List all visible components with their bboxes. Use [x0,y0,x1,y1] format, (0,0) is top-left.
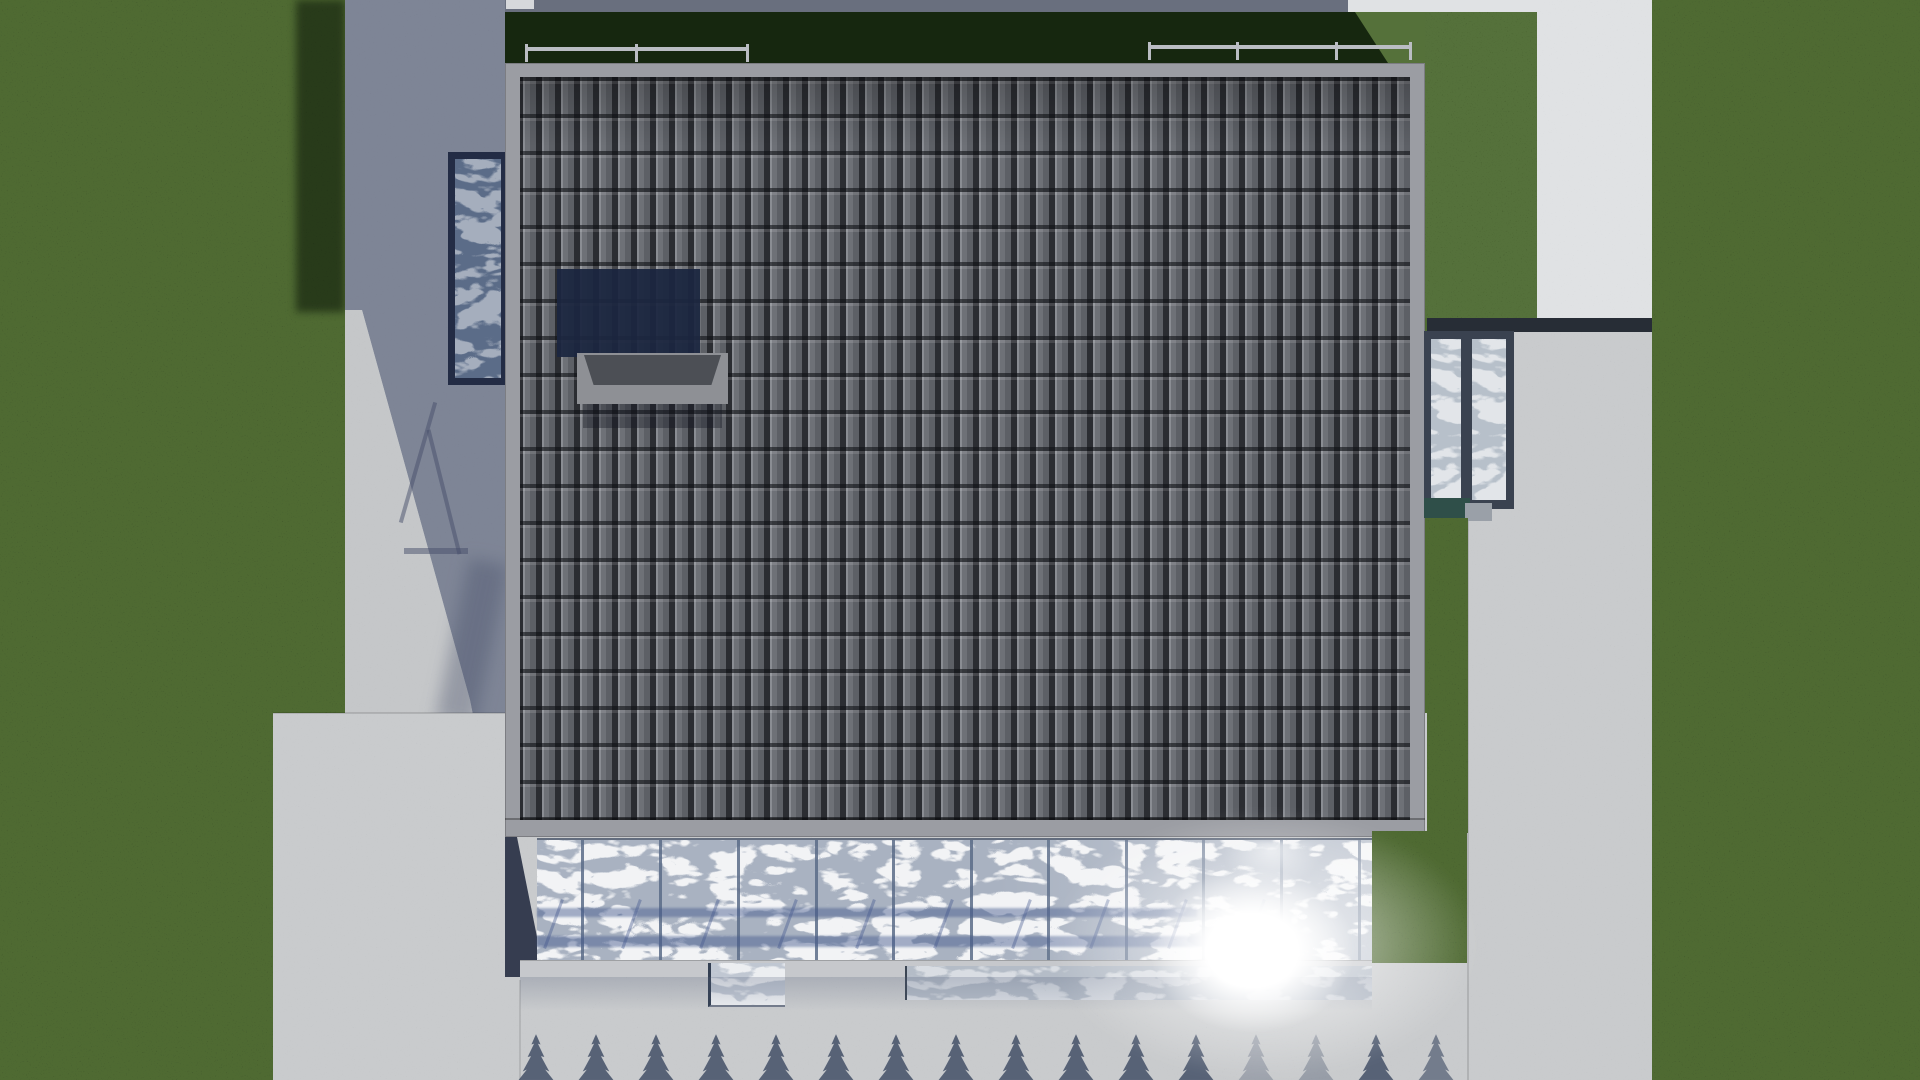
conifer-shadow-0 [517,1034,555,1080]
conifer-shadow-7 [937,1034,975,1080]
conifer-shadow-2 [637,1034,675,1080]
conifer-shadow-6 [877,1034,915,1080]
conifer-shadow-1 [577,1034,615,1080]
sun-glare-core [1150,868,1355,1033]
conifer-shadow-row [0,0,1920,1080]
conifer-shadow-3 [697,1034,735,1080]
aerial-render-scene [0,0,1920,1080]
conifer-shadow-8 [997,1034,1035,1080]
conifer-shadow-4 [757,1034,795,1080]
conifer-shadow-5 [817,1034,855,1080]
